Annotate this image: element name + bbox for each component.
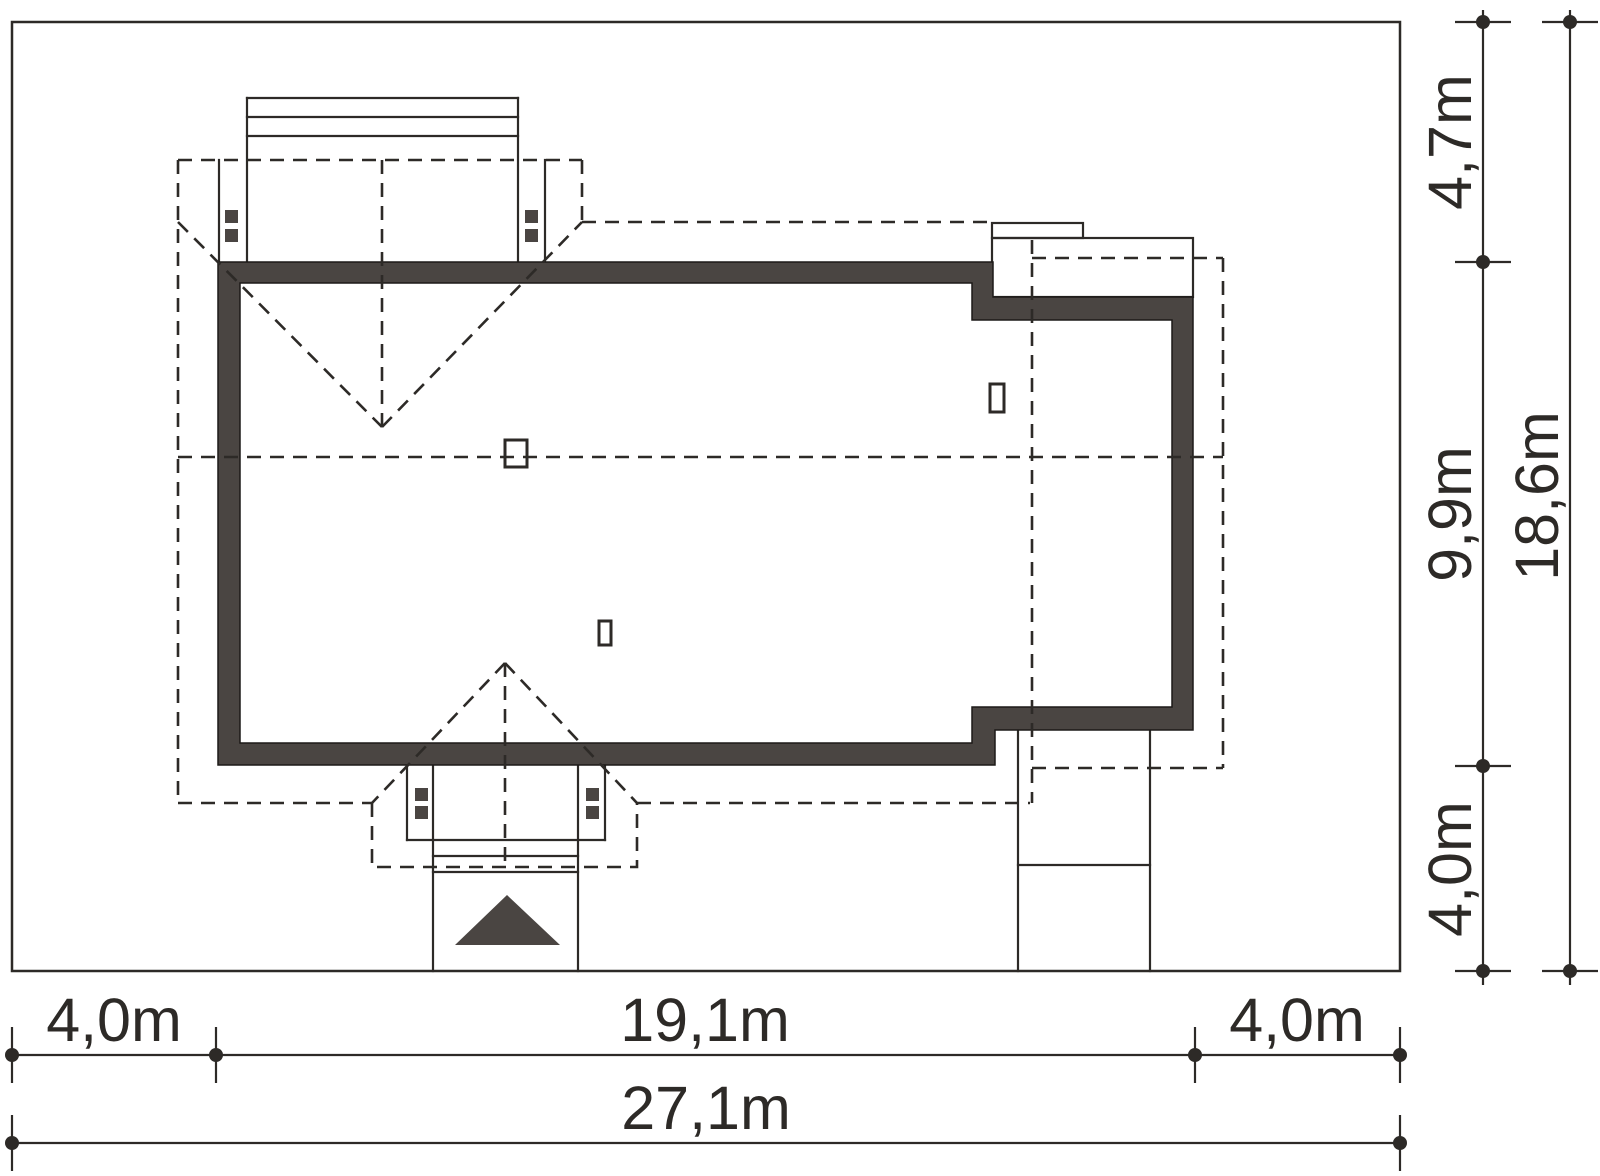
- dim-bottom-total: 27,1m: [621, 1074, 791, 1142]
- dim-bottom-right: 4,0m: [1229, 986, 1365, 1054]
- site-plan-figure: 4,0m 19,1m 4,0m 27,1m 4,7m 9,9m 4,0m 18,…: [0, 0, 1600, 1176]
- dim-right-total: 18,6m: [1503, 411, 1571, 581]
- dim-right-middle: 9,9m: [1416, 446, 1484, 582]
- dim-right-top: 4,7m: [1416, 74, 1484, 210]
- dim-bottom-center: 19,1m: [620, 986, 790, 1054]
- dim-right-bottom: 4,0m: [1416, 801, 1484, 937]
- dim-bottom-left: 4,0m: [46, 986, 182, 1054]
